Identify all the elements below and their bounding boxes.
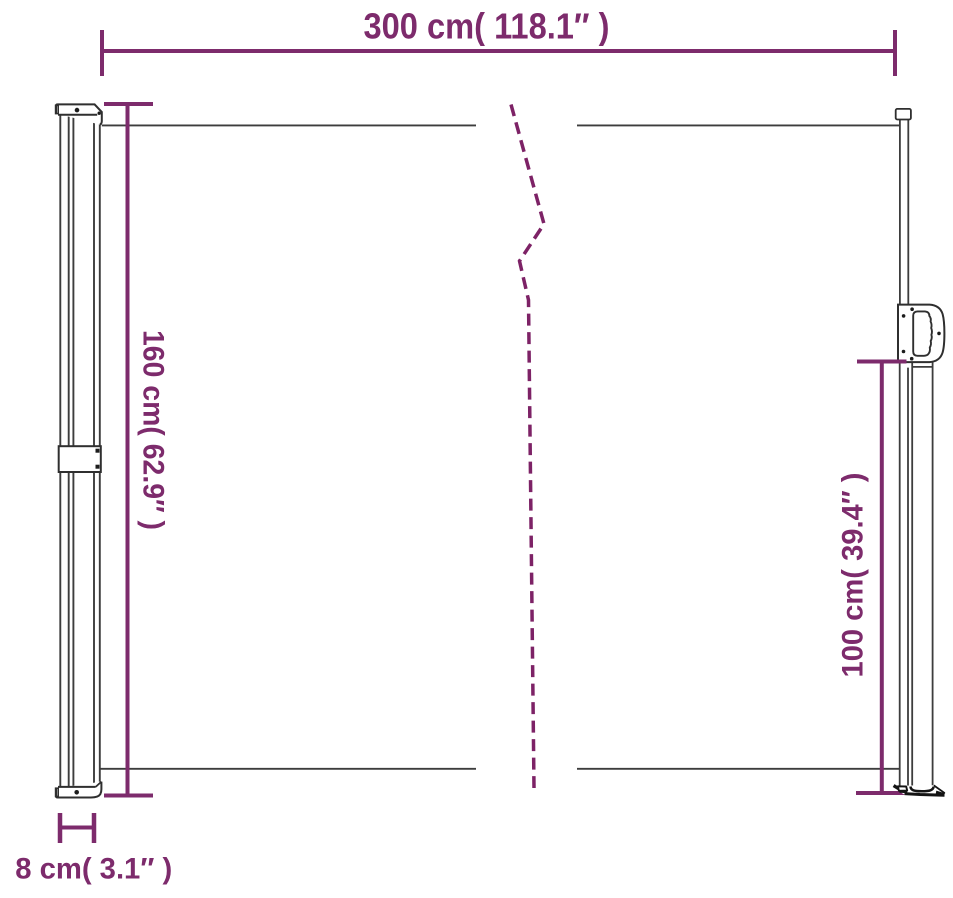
svg-text:160 cm( 62.9″ ): 160 cm( 62.9″ ) <box>137 330 170 530</box>
svg-text:8 cm( 3.1″ ): 8 cm( 3.1″ ) <box>15 853 172 886</box>
svg-text:100 cm( 39.4″ ): 100 cm( 39.4″ ) <box>837 473 870 678</box>
svg-text:300 cm( 118.1″ ): 300 cm( 118.1″ ) <box>364 6 610 47</box>
